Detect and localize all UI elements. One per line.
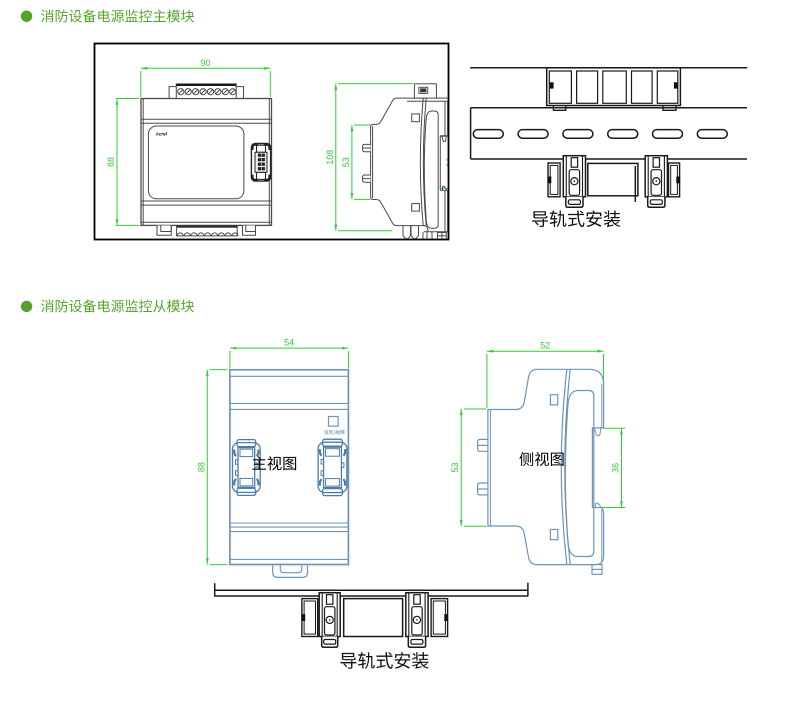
svg-text:108: 108 (325, 150, 335, 165)
svg-text:Acrel: Acrel (155, 131, 168, 136)
svg-text:54: 54 (284, 338, 294, 348)
svg-text:53: 53 (341, 157, 351, 167)
svg-text:53: 53 (450, 462, 460, 472)
svg-text:52: 52 (540, 341, 550, 351)
svg-text:36: 36 (611, 463, 621, 473)
svg-text:90: 90 (201, 58, 211, 68)
svg-text:88: 88 (196, 462, 206, 472)
svg-text:88: 88 (106, 157, 116, 167)
